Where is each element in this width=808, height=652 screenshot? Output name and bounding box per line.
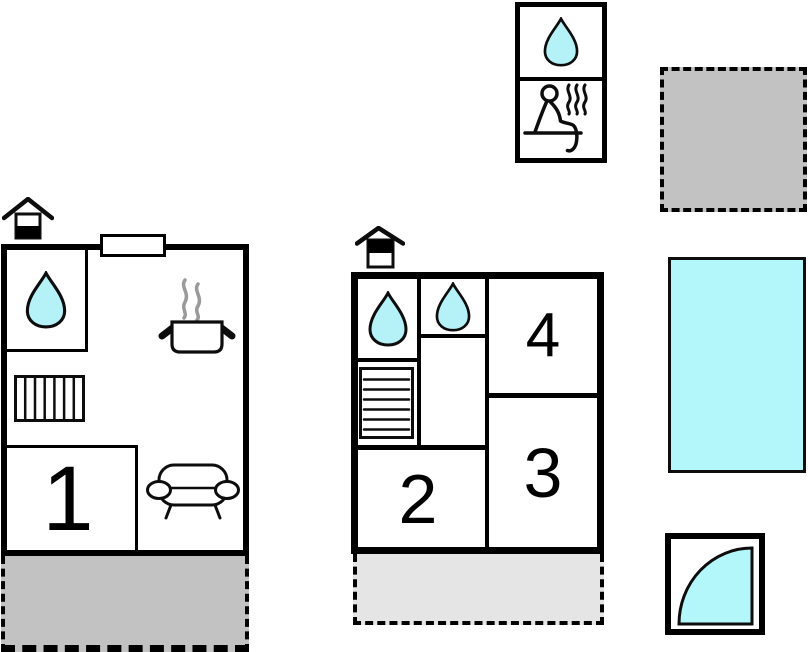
bathroom-cell	[7, 250, 88, 352]
sofa-icon	[146, 462, 240, 520]
plot-area	[660, 67, 807, 212]
stairs-icon	[359, 367, 414, 439]
chimney-icon	[2, 197, 54, 241]
stove-icon	[155, 276, 239, 356]
terrace-house-2	[353, 554, 604, 625]
floorplan-house-2: 4 3 2	[351, 272, 604, 554]
chimney-icon	[355, 226, 405, 269]
room-4-label: 4	[526, 305, 560, 367]
room-3: 3	[489, 398, 597, 547]
wall	[421, 334, 485, 338]
floorplan-canvas: 1	[0, 0, 808, 652]
wall	[135, 445, 138, 550]
wc-cell	[421, 279, 485, 334]
room-1: 1	[1, 448, 135, 550]
wardrobe-icon	[14, 375, 85, 422]
room-4: 4	[489, 279, 597, 393]
water-drop-icon	[543, 17, 579, 67]
water-drop-icon	[435, 282, 471, 332]
bathroom-cell	[358, 279, 417, 358]
room-2-label: 2	[399, 464, 438, 534]
facility-legend-box	[515, 2, 607, 163]
floorplan-house-1: 1	[1, 244, 249, 556]
legend-cell-sauna	[520, 81, 602, 158]
legend-cell-bath	[520, 7, 602, 77]
outdoor-hot-tub-box	[665, 533, 765, 635]
room-3-label: 3	[524, 438, 563, 508]
sauna-icon	[521, 82, 602, 158]
water-drop-icon	[368, 291, 408, 347]
wall	[358, 358, 417, 362]
quarter-circle-bath-icon	[671, 539, 759, 629]
swimming-pool	[668, 257, 806, 473]
terrace-house-1	[1, 556, 249, 652]
window-marker	[100, 234, 166, 257]
water-drop-icon	[25, 271, 67, 329]
room-1-label: 1	[42, 453, 93, 545]
room-2: 2	[351, 450, 485, 547]
